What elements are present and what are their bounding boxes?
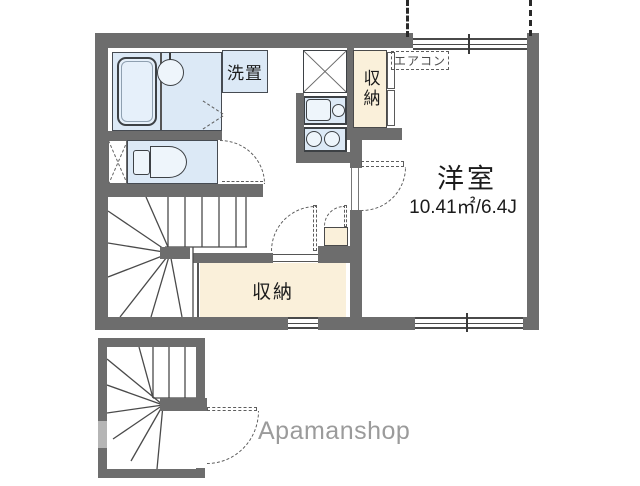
storage-door-panel (387, 90, 395, 126)
wall-toilet-bottom (108, 184, 263, 197)
refrigerator-space-icon (303, 50, 347, 93)
storage-upper: 収納 (353, 50, 387, 128)
wall-storage-upper-bottom (347, 128, 402, 140)
floor-plan: 洗置 収納 エアコン 収納 (0, 0, 640, 486)
window-bottom-small (288, 317, 318, 329)
main-room-name: 洋室 (427, 160, 507, 192)
stove-burner-icon (324, 131, 340, 147)
main-room-door-frame (351, 168, 359, 210)
staircase-upper-icon (108, 197, 247, 317)
eave-dashed-line (406, 0, 409, 37)
wall-bottom-segment (95, 317, 288, 330)
stove-burner-icon (306, 131, 322, 147)
wall-bath-bottom (108, 131, 222, 140)
aircon-label: エアコン (394, 52, 446, 69)
storage-upper-label: 収納 (358, 69, 383, 109)
entrance-door-arc (207, 411, 259, 464)
storage-lower-door-leaf (313, 205, 317, 251)
kitchen-faucet-icon (332, 104, 345, 117)
washer-space-label: 洗置 (227, 59, 263, 84)
entrance-door-gap (196, 410, 205, 468)
kitchen-sink-icon (306, 99, 331, 121)
window-bottom-main (415, 317, 523, 329)
toilet-bowl-icon (150, 146, 187, 178)
window-mullion (468, 34, 470, 54)
storage-lower-door-arc (271, 206, 316, 251)
wall-top (95, 33, 413, 48)
shoe-box-door-leaf (344, 205, 347, 227)
window-mullion (466, 313, 468, 332)
wall-right (527, 33, 539, 325)
watermark: Apamanshop (258, 417, 410, 446)
wall-bottom-segment (523, 317, 539, 330)
washer-space: 洗置 (222, 50, 268, 93)
window-top (413, 38, 527, 50)
eave-dashed-line (529, 0, 532, 36)
wall-shoe-box-stub (318, 246, 350, 263)
bath-sink-icon (157, 59, 184, 86)
bath-faucet-icon (169, 53, 171, 60)
storage-lower-threshold (273, 254, 318, 262)
toilet-door-arc (220, 140, 265, 184)
toilet-door-threshold (222, 181, 263, 182)
storage-lower-label: 収納 (252, 277, 294, 304)
toilet-closet-door-icon (108, 140, 127, 184)
bathtub-icon (117, 57, 157, 126)
staircase-lower-icon (107, 347, 196, 469)
aircon-label-box: エアコン (391, 51, 449, 70)
shoe-box (324, 227, 348, 246)
main-room-area: 10.41㎡/6.4J (393, 194, 533, 216)
shoe-box-door-arc (324, 206, 344, 226)
entrance-wall-window (98, 421, 107, 448)
wall-bottom-segment (318, 317, 415, 330)
toilet-tank-icon (133, 150, 150, 175)
wall-hall-right (350, 210, 362, 317)
wall-left (95, 33, 108, 330)
